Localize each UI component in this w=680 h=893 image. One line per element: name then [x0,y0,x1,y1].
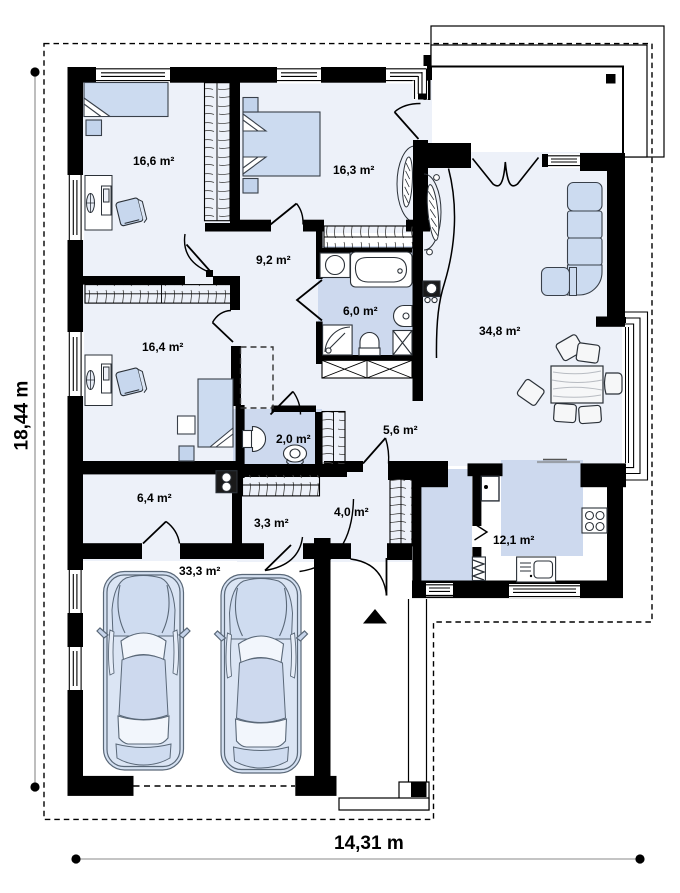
svg-text:5,6 m²: 5,6 m² [383,423,418,437]
svg-text:9,2 m²: 9,2 m² [256,253,291,267]
svg-text:6,0 m²: 6,0 m² [343,304,378,318]
svg-text:6,4 m²: 6,4 m² [137,491,172,505]
svg-text:16,3 m²: 16,3 m² [333,163,374,177]
svg-text:14,31 m: 14,31 m [334,833,404,854]
svg-text:12,1 m²: 12,1 m² [493,533,534,547]
svg-text:16,4 m²: 16,4 m² [142,340,183,354]
svg-text:16,6 m²: 16,6 m² [133,154,174,168]
svg-text:4,0 m²: 4,0 m² [334,505,369,519]
svg-text:18,44 m: 18,44 m [12,381,33,451]
svg-text:2,0 m²: 2,0 m² [276,432,311,446]
svg-text:33,3 m²: 33,3 m² [179,564,220,578]
svg-text:34,8 m²: 34,8 m² [479,324,520,338]
svg-text:3,3 m²: 3,3 m² [254,516,289,530]
